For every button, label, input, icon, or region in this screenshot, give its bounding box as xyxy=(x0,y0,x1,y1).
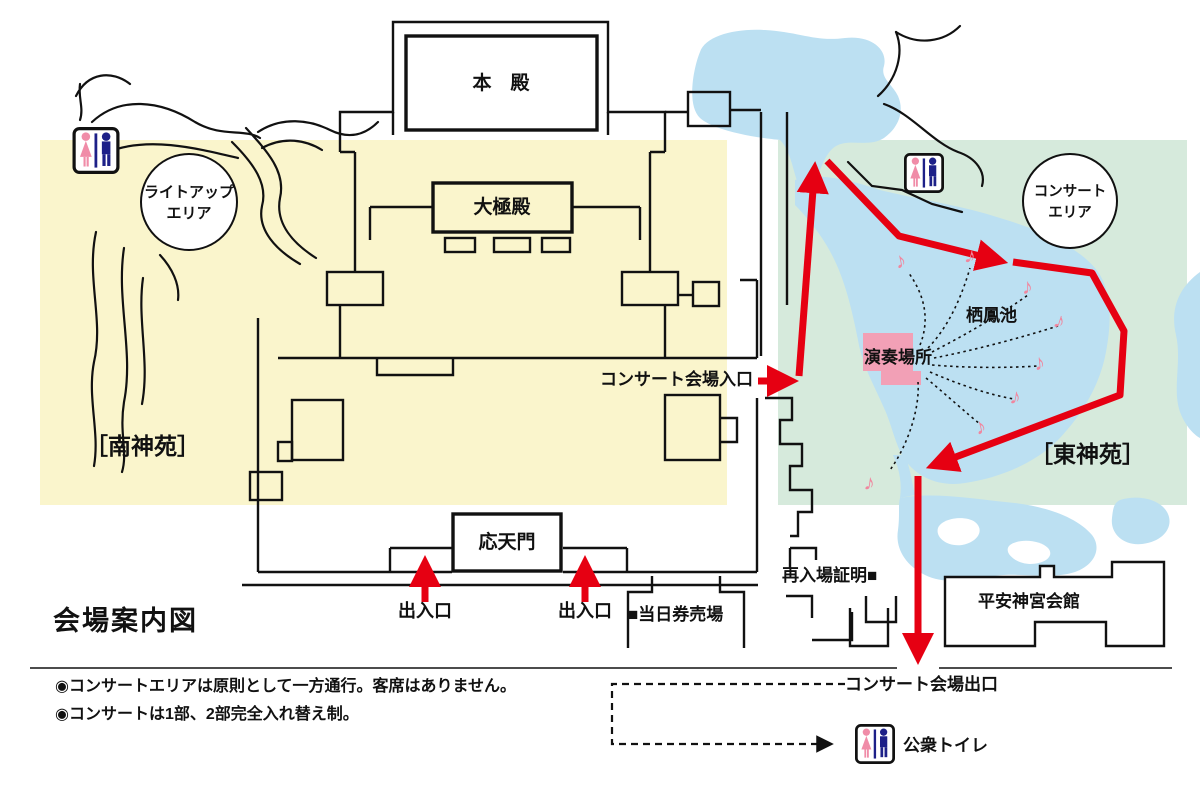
route-segment-up xyxy=(799,190,813,376)
pond-shapes xyxy=(692,30,1200,581)
seiho-pond-label: 栖鳳池 xyxy=(966,306,1017,326)
concert-area-circle: コンサート エリア xyxy=(1022,153,1118,249)
page-title: 会場案内図 xyxy=(53,606,198,637)
lightup-area-label-2: エリア xyxy=(166,202,211,223)
restroom-icon xyxy=(74,129,118,173)
toilet-route-dashed xyxy=(612,684,845,744)
restroom-icon xyxy=(905,154,942,191)
otenmon-label: 応天門 xyxy=(442,532,572,554)
note-line-2: ◉コンサートは1部、2部完全入れ替え制。 xyxy=(55,706,359,724)
daigokuden-label: 大極殿 xyxy=(437,197,567,219)
venue-map: ♪ ♪ ♪ ♪ ♪ ♪ ♪ ♪ ライトアップ エリア コンサート エリア 本 殿… xyxy=(0,0,1200,788)
gate-left-label: 出入口 xyxy=(398,601,452,622)
lightup-area-circle: ライトアップ エリア xyxy=(140,153,238,251)
reentry-proof-label: 再入場証明■ xyxy=(782,566,877,586)
concert-exit-label: コンサート会場出口 xyxy=(845,675,998,695)
concert-area-label-2: エリア xyxy=(1048,201,1092,222)
south-garden-label: ［南神苑］ xyxy=(85,433,200,459)
lightup-area-label-1: ライトアップ xyxy=(144,181,234,202)
main-buildings xyxy=(406,36,597,571)
concert-entrance-label: コンサート会場入口 xyxy=(600,370,752,390)
east-garden-label: ［東神苑］ xyxy=(1030,441,1145,467)
heian-hall-label: 平安神宮会館 xyxy=(978,592,1080,612)
note-line-1: ◉コンサートエリアは原則として一方通行。客席はありません。 xyxy=(55,678,516,696)
concert-area-label-1: コンサート xyxy=(1034,180,1107,201)
honden-label: 本 殿 xyxy=(436,73,566,95)
stage-label: 演奏場所 xyxy=(864,348,932,368)
restroom-icon xyxy=(856,725,893,762)
music-note-icon: ♪ xyxy=(1022,274,1033,300)
gate-right-label: 出入口 xyxy=(558,601,612,622)
public-toilet-label: 公衆トイレ xyxy=(903,736,988,756)
ticket-office-label: ■当日券売場 xyxy=(628,605,723,625)
